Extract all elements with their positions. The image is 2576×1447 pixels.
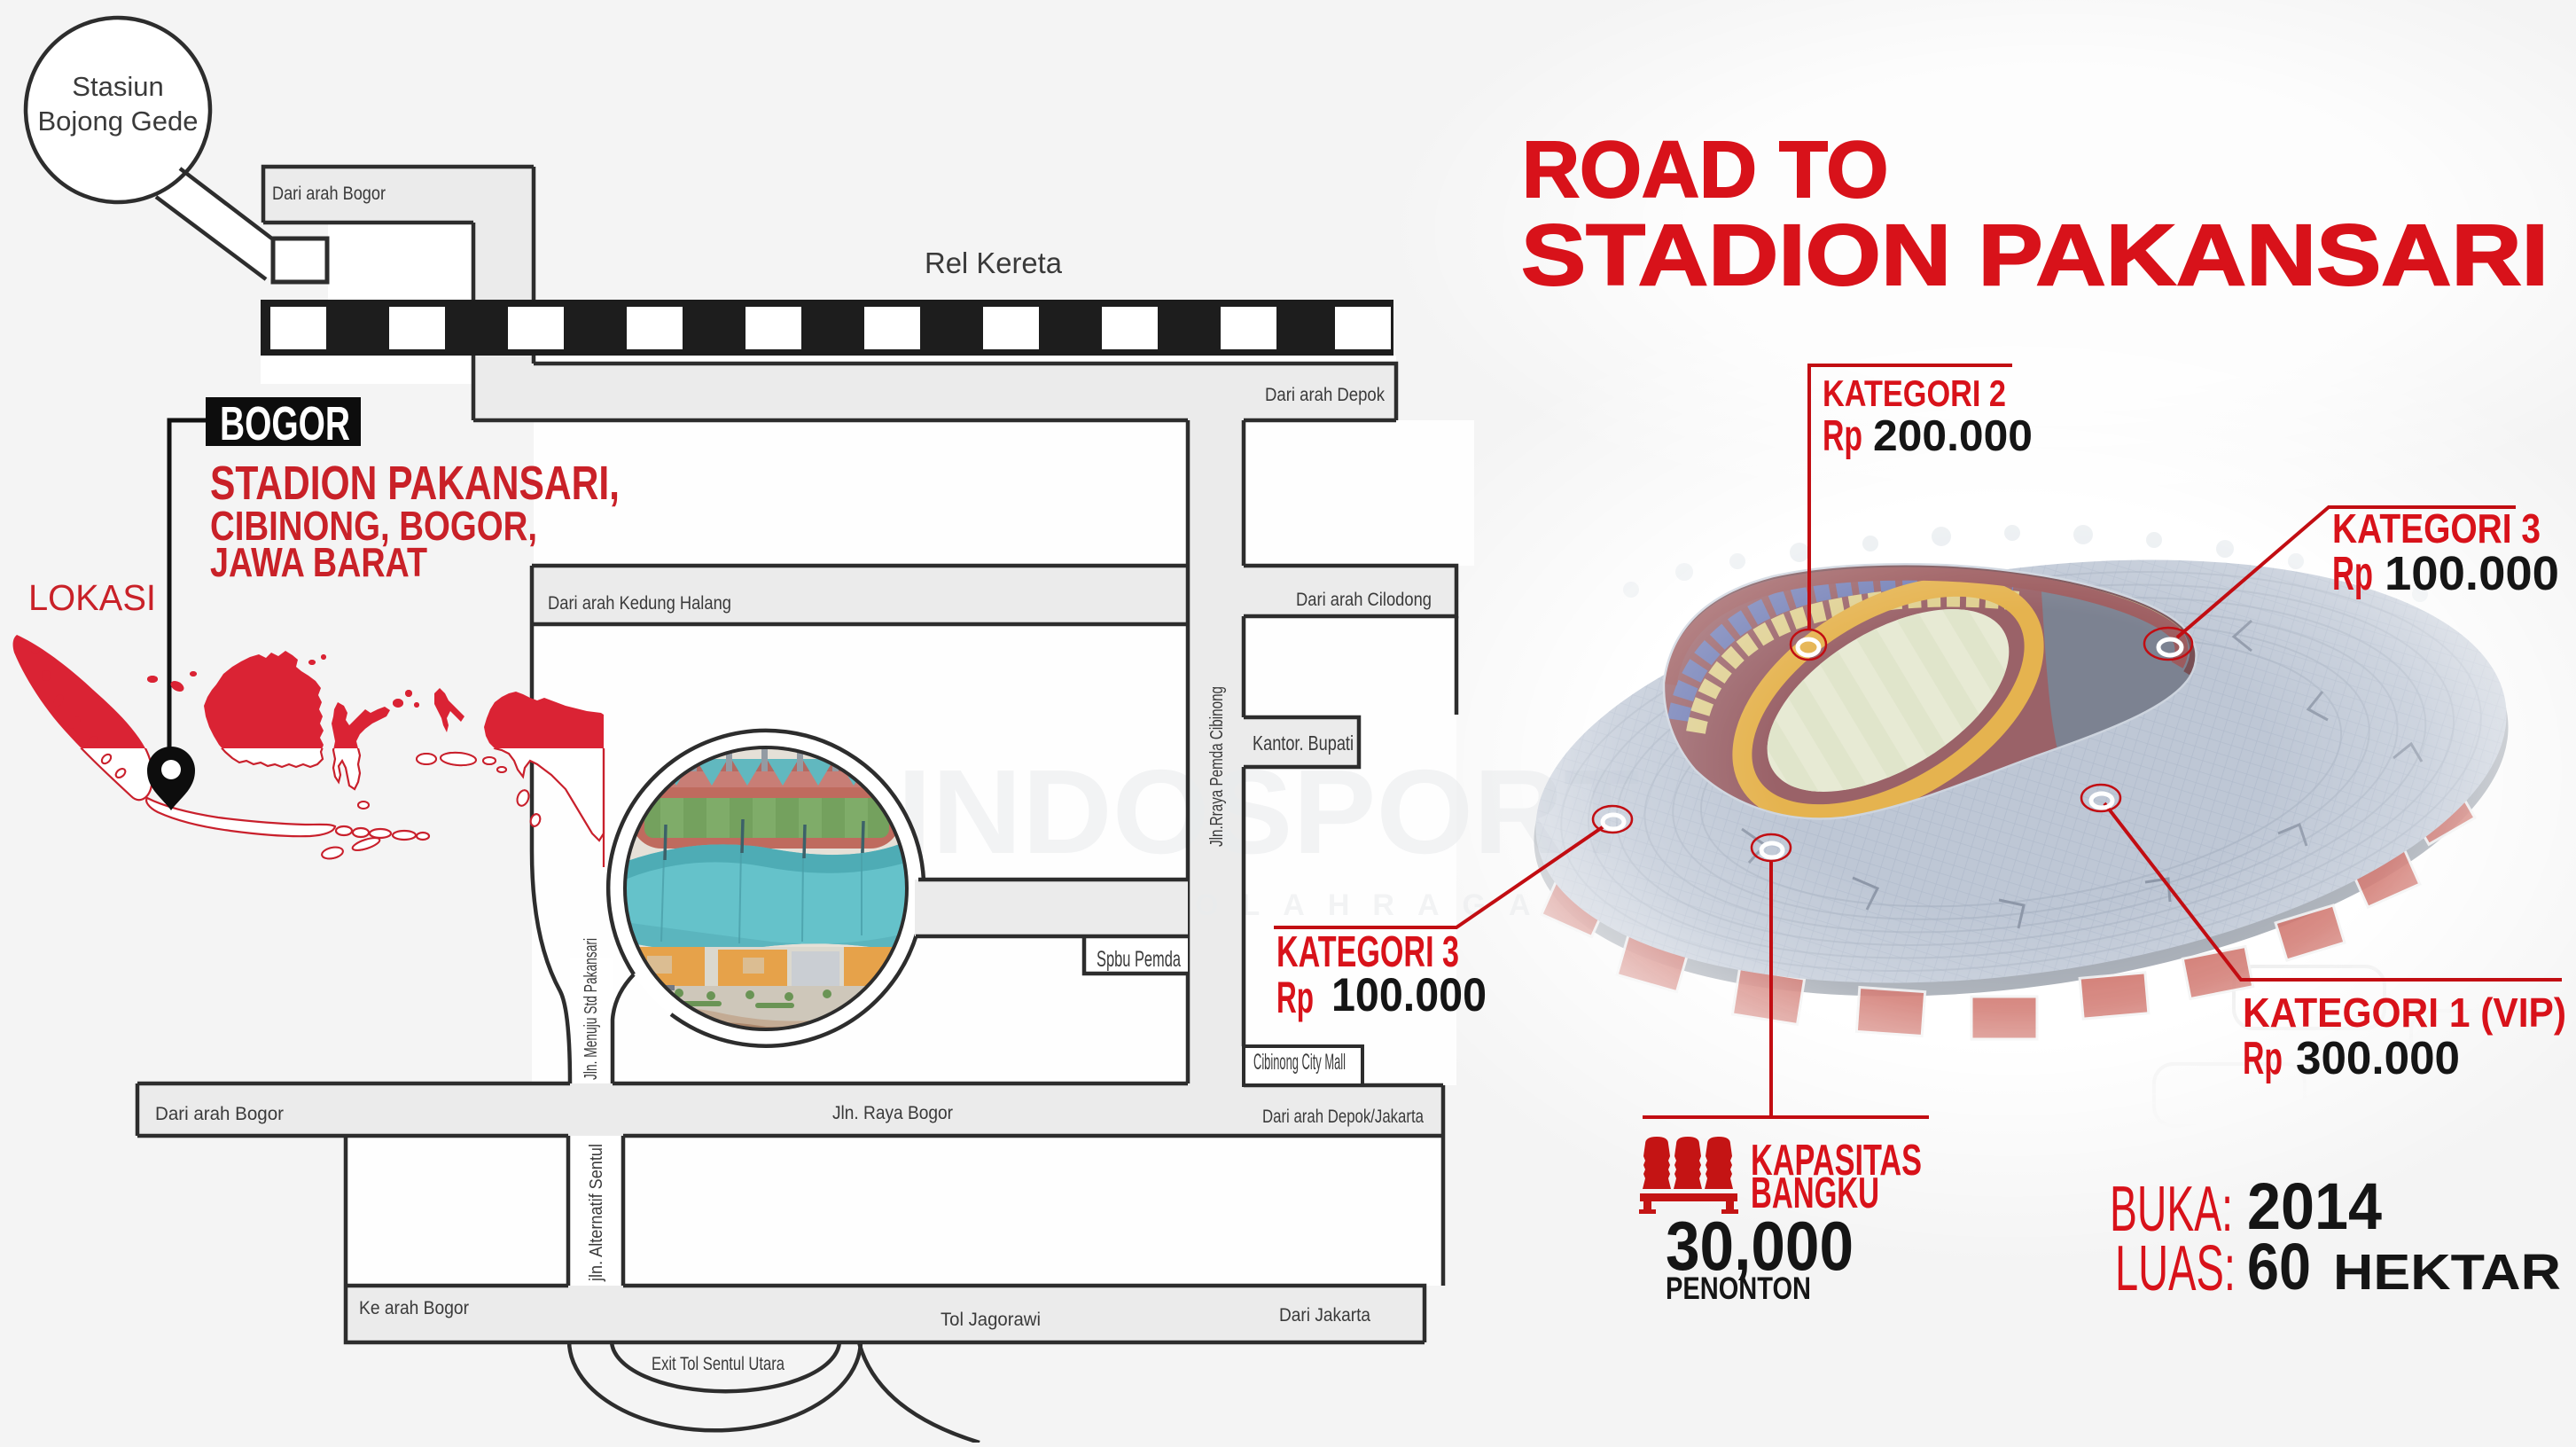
svg-text:HEKTAR: HEKTAR — [2333, 1244, 2561, 1301]
svg-text:Dari arah Depok/Jakarta: Dari arah Depok/Jakarta — [1262, 1107, 1424, 1127]
svg-text:STADION PAKANSARI: STADION PAKANSARI — [1521, 207, 2549, 303]
svg-text:Ke arah Bogor: Ke arah Bogor — [359, 1298, 469, 1318]
svg-text:Dari arah Bogor: Dari arah Bogor — [155, 1104, 284, 1124]
svg-text:KATEGORI 1 (VIP): KATEGORI 1 (VIP) — [2243, 989, 2566, 1036]
svg-text:Kantor. Bupati: Kantor. Bupati — [1253, 731, 1354, 755]
svg-text:Dari arah Bogor: Dari arah Bogor — [272, 184, 386, 204]
svg-text:STADION PAKANSARI,: STADION PAKANSARI, — [210, 457, 620, 510]
svg-text:BOGOR: BOGOR — [220, 397, 350, 450]
svg-text:JAWA BARAT: JAWA BARAT — [210, 539, 427, 585]
svg-text:Rp: Rp — [1823, 412, 1862, 460]
svg-text:Bojong Gede: Bojong Gede — [38, 106, 199, 137]
svg-text:300.000: 300.000 — [2296, 1033, 2460, 1084]
svg-text:KATEGORI 3: KATEGORI 3 — [2332, 505, 2541, 551]
svg-text:Dari Jakarta: Dari Jakarta — [1279, 1305, 1370, 1326]
svg-text:ROAD TO: ROAD TO — [1522, 126, 1888, 215]
svg-text:200.000: 200.000 — [1873, 412, 2033, 460]
svg-text:Rp: Rp — [2332, 547, 2373, 600]
svg-text:Rel Kereta: Rel Kereta — [925, 246, 1063, 279]
svg-text:Cibinong City Mall: Cibinong City Mall — [1253, 1050, 1346, 1075]
svg-text:Jln.Rraya Pemda Cibinong: Jln.Rraya Pemda Cibinong — [1207, 686, 1227, 847]
svg-text:Rp: Rp — [1276, 973, 1314, 1022]
svg-text:Spbu Pemda: Spbu Pemda — [1097, 947, 1181, 972]
svg-text:Stasiun: Stasiun — [72, 71, 163, 102]
svg-text:Jln. Raya Bogor: Jln. Raya Bogor — [832, 1103, 953, 1123]
svg-text:Tol Jagorawi: Tol Jagorawi — [941, 1310, 1041, 1330]
svg-text:100.000: 100.000 — [1331, 969, 1487, 1021]
svg-text:PENONTON: PENONTON — [1666, 1271, 1811, 1306]
svg-text:Exit Tol Sentul Utara: Exit Tol Sentul Utara — [652, 1354, 785, 1374]
svg-text:Dari arah Cilodong: Dari arah Cilodong — [1296, 590, 1432, 610]
svg-text:Jln. Menuju Std Pakansari: Jln. Menuju Std Pakansari — [582, 938, 601, 1080]
svg-text:KATEGORI 2: KATEGORI 2 — [1823, 372, 2006, 414]
svg-text:60: 60 — [2247, 1230, 2311, 1303]
svg-text:LUAS:: LUAS: — [2115, 1233, 2236, 1304]
svg-text:Dari arah Depok: Dari arah Depok — [1265, 385, 1385, 405]
svg-text:jln. Alternatif Sentul: jln. Alternatif Sentul — [587, 1144, 606, 1282]
svg-text:Dari arah Kedung Halang: Dari arah Kedung Halang — [548, 593, 731, 614]
svg-text:Rp: Rp — [2243, 1033, 2283, 1084]
svg-text:100.000: 100.000 — [2385, 547, 2559, 600]
svg-text:LOKASI: LOKASI — [28, 577, 156, 618]
